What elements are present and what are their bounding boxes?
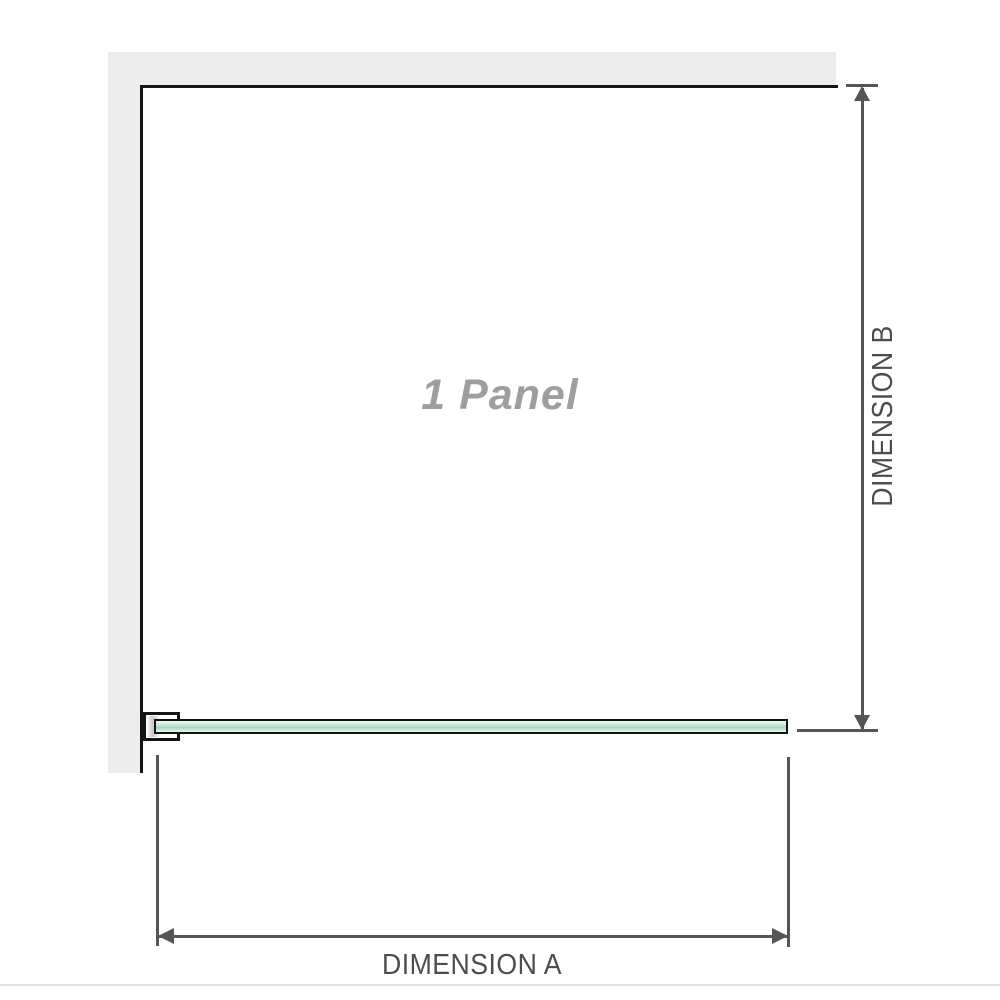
arrow-up-icon xyxy=(854,86,870,101)
dimension-a-line xyxy=(158,935,788,938)
dimension-a-label: DIMENSION A xyxy=(334,949,610,981)
dimension-a-left-extension xyxy=(156,755,159,946)
arrow-left-icon xyxy=(158,928,174,944)
wall-left-bar xyxy=(108,52,140,773)
panel-dimension-diagram: 1 Panel DIMENSION B DIMENSION A xyxy=(0,0,1000,1000)
arrow-down-icon xyxy=(854,715,870,730)
panel-count-label: 1 Panel xyxy=(380,369,620,421)
dimension-b-label: DIMENSION B xyxy=(868,315,898,517)
arrow-right-icon xyxy=(772,928,788,944)
glass-panel xyxy=(154,719,788,734)
dimension-a-right-extension xyxy=(787,757,790,947)
panel-outline-top xyxy=(140,85,838,88)
panel-outline-left xyxy=(140,85,143,773)
dimension-b-line xyxy=(861,88,864,730)
wall-top-bar xyxy=(108,52,836,85)
bottom-divider-line xyxy=(0,984,1000,986)
